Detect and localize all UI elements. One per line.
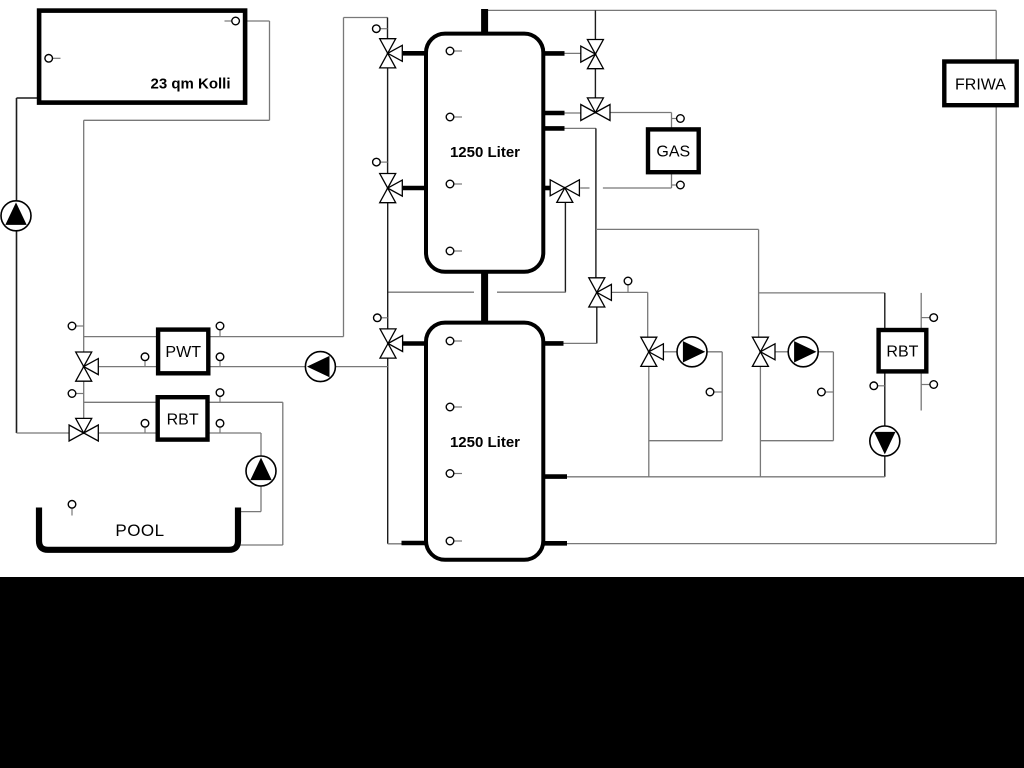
svg-text:GAS: GAS: [656, 144, 690, 161]
svg-text:PWT: PWT: [165, 344, 201, 361]
svg-text:1250 Liter: 1250 Liter: [450, 434, 520, 451]
svg-text:1250 Liter: 1250 Liter: [450, 144, 520, 161]
svg-text:23 qm Kolli: 23 qm Kolli: [150, 76, 230, 93]
svg-text:RBT: RBT: [886, 344, 918, 361]
svg-text:RBT: RBT: [167, 412, 199, 429]
svg-text:FRIWA: FRIWA: [955, 76, 1006, 93]
svg-text:POOL: POOL: [115, 521, 164, 540]
